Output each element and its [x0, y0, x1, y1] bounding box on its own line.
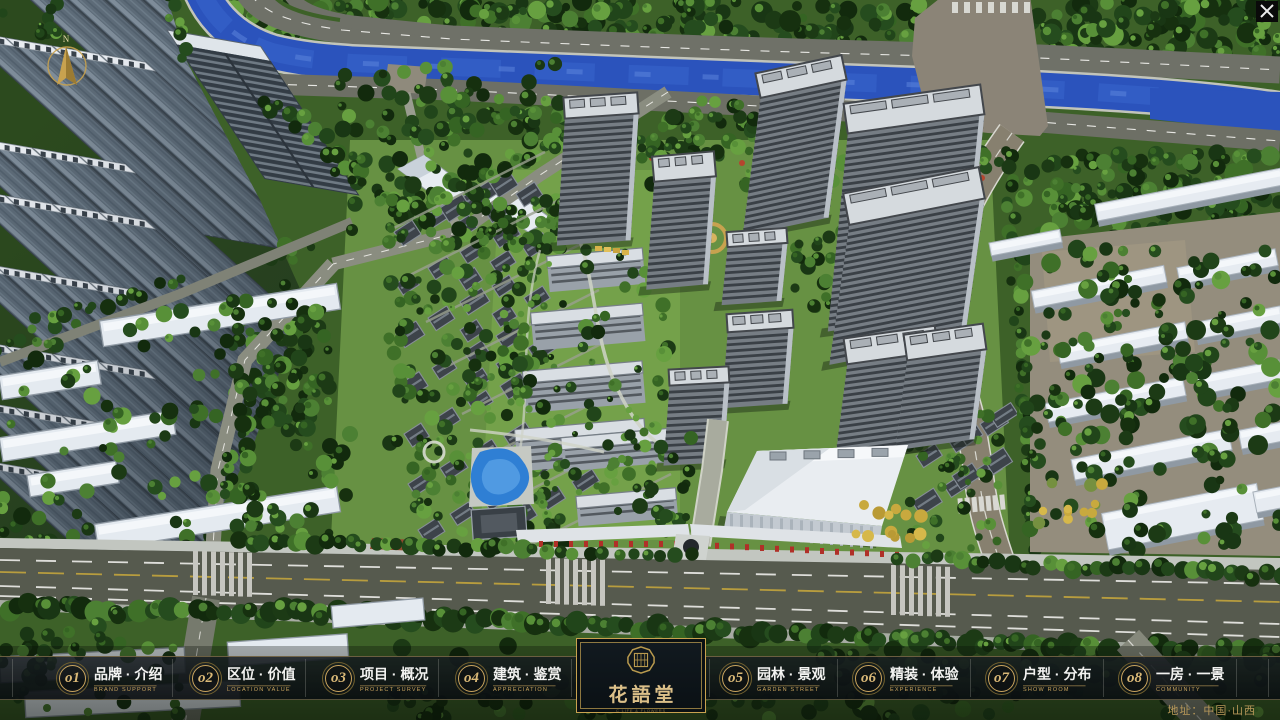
svg-text:N: N — [63, 34, 70, 44]
